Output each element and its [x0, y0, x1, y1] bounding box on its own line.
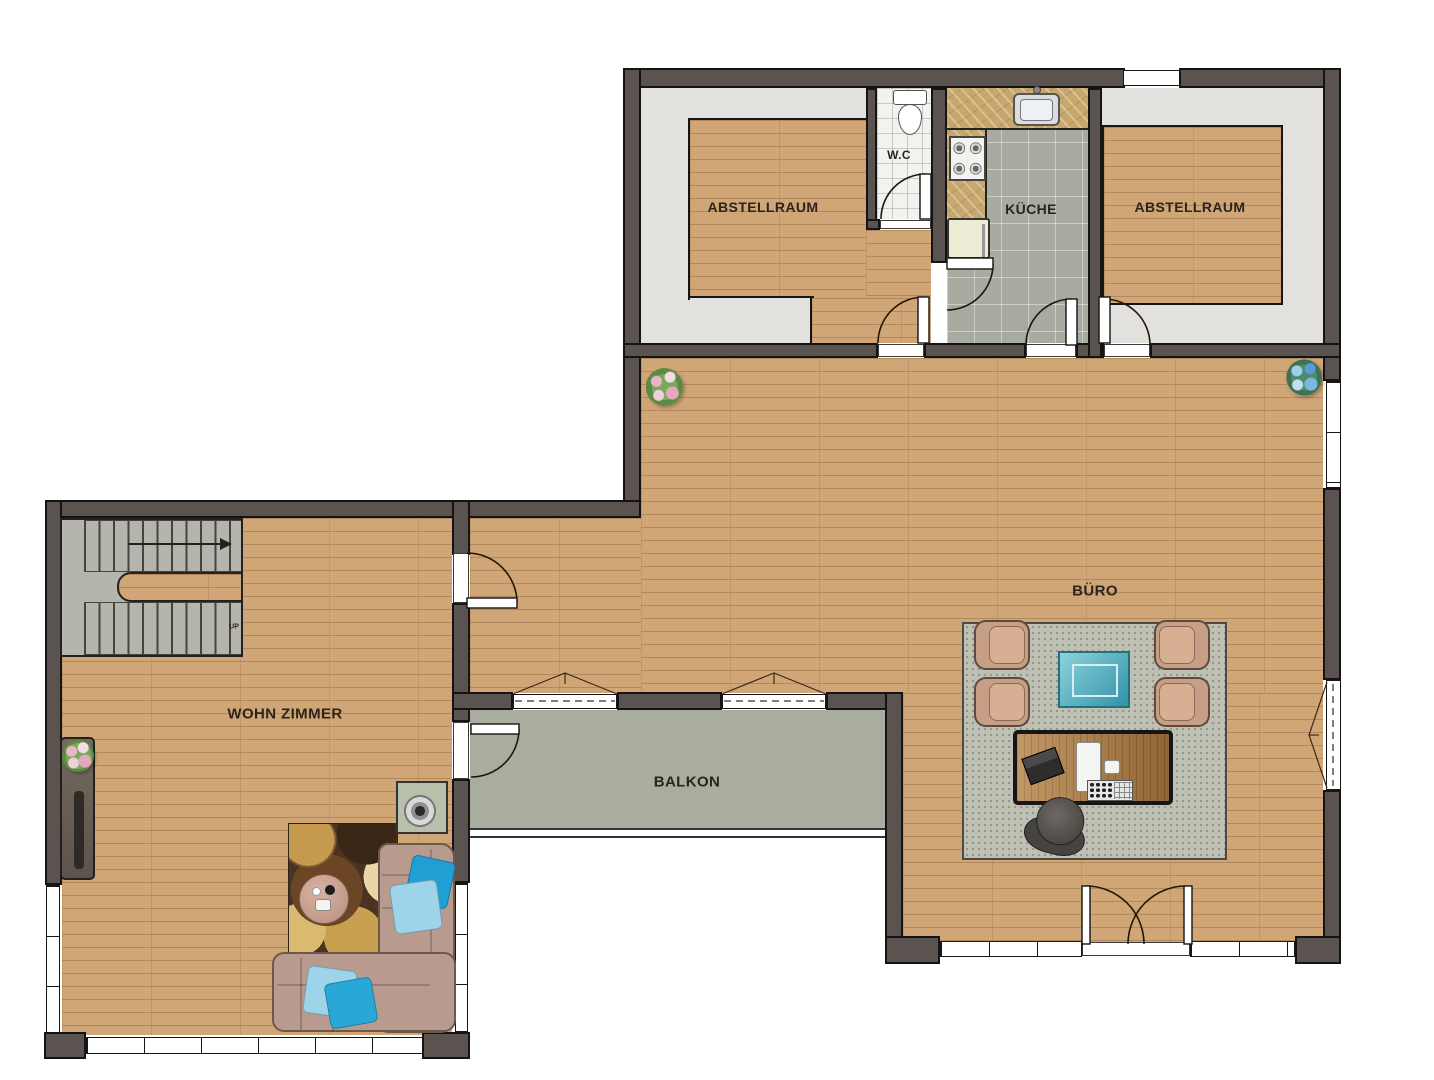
patch-border	[688, 296, 814, 298]
fireplace-stove	[396, 781, 448, 834]
pillow-dark-cyan	[323, 976, 378, 1030]
wall-kueche-east	[1088, 88, 1102, 358]
wall-left-upper-block	[623, 68, 641, 518]
balkon-floor	[470, 710, 887, 828]
patch-border	[810, 296, 812, 343]
corner-buero-bottom-left	[885, 936, 940, 964]
flower-plant	[1285, 359, 1322, 396]
stove-ring	[403, 794, 437, 828]
window-wohnzimmer-bottom	[86, 1037, 423, 1054]
sink-faucet	[1033, 86, 1041, 94]
window-buero-bottom-1	[940, 941, 1082, 957]
window-buero-bottom-2	[1190, 941, 1295, 957]
sliding-door-balcony-2	[722, 694, 826, 709]
wc-door-gap	[880, 220, 931, 229]
abstellraum-left-wood-step	[812, 298, 931, 343]
wall-wohnzimmer-top	[45, 500, 641, 518]
wall-right-upper	[1323, 68, 1341, 381]
wall-balcony-1	[452, 692, 513, 710]
window-top	[1123, 70, 1181, 86]
numpad	[1114, 782, 1132, 799]
flower-plant	[645, 368, 683, 406]
label-wc: W.C	[887, 148, 911, 162]
coffee-table-round	[299, 874, 349, 924]
kitchen-sink	[1013, 93, 1060, 126]
label-buero: BÜRO	[1072, 583, 1118, 600]
sink-basin	[1020, 99, 1053, 121]
stairs-void	[117, 572, 243, 602]
window-wz-east	[455, 883, 468, 1032]
wall-top-left	[623, 68, 1125, 88]
staircase	[60, 518, 243, 657]
label-balkon: BALKON	[654, 774, 721, 791]
sliding-door-right	[1326, 680, 1341, 790]
window-right-upper	[1326, 381, 1341, 488]
wall-top-right	[1179, 68, 1341, 88]
door-gap	[1104, 344, 1150, 357]
label-kueche: KÜCHE	[1005, 201, 1057, 217]
wall-topblock-bottom-1	[623, 343, 878, 358]
sliding-door-balcony-1	[513, 694, 617, 709]
wall-topblock-bottom-2	[924, 343, 1026, 358]
wall-wc-west	[866, 88, 877, 230]
sideboard-decor	[74, 791, 84, 869]
door-gap	[878, 344, 924, 357]
corner-wz-bottom-right	[422, 1032, 470, 1059]
hall-floor-left	[470, 518, 641, 693]
fridge-handle	[982, 224, 985, 257]
armchair	[974, 620, 1030, 670]
patch-border	[688, 118, 868, 120]
stairs-up-label: UP	[229, 624, 239, 631]
corner-wz-bottom-left	[44, 1032, 86, 1059]
cup	[312, 887, 321, 896]
potted-plant	[62, 740, 94, 772]
wall-right-mid	[1323, 488, 1341, 680]
stairs-lower-flight	[84, 602, 241, 655]
floor-plan: UP	[0, 0, 1434, 1080]
abstellraum-right-wood	[1102, 125, 1283, 305]
label-abstellraum-right: ABSTELLRAUM	[1135, 199, 1246, 215]
wall-wc-bottom-stub	[866, 219, 880, 230]
balcony-railing	[468, 828, 888, 838]
entry-door-gap	[1082, 942, 1190, 956]
sofa-seam	[277, 984, 301, 986]
door-gap	[1026, 344, 1076, 357]
bowl	[325, 885, 335, 895]
keyboard	[1087, 780, 1133, 801]
pillow-light-cyan	[389, 879, 443, 935]
keyboard-keys	[1089, 782, 1113, 799]
armchair	[974, 677, 1030, 727]
coffee-table-teal	[1058, 651, 1130, 708]
wall-wc-east	[931, 88, 947, 263]
note-card	[1104, 760, 1120, 774]
door-gap-balcony	[453, 722, 469, 779]
stove-cooktop	[949, 136, 986, 181]
wall-right-lower	[1323, 790, 1341, 942]
wall-wz-east-1	[452, 500, 470, 555]
sofa-seam	[300, 958, 302, 1030]
corner-buero-bottom-right	[1295, 936, 1341, 964]
tray	[315, 899, 331, 911]
toilet	[893, 90, 927, 136]
armchair	[1154, 620, 1210, 670]
toilet-bowl	[898, 104, 922, 135]
stairs-upper-flight	[84, 520, 241, 572]
laptop	[1021, 747, 1064, 786]
wall-buero-west	[885, 692, 903, 964]
table-inlay	[1072, 664, 1118, 697]
refrigerator	[947, 218, 990, 259]
armchair	[1154, 677, 1210, 727]
wall-balcony-2	[617, 692, 722, 710]
door-gap-hall	[453, 553, 469, 603]
patch-border	[688, 118, 690, 300]
wall-topblock-bottom-4	[1150, 343, 1341, 358]
label-wohnzimmer: WOHN ZIMMER	[227, 706, 342, 723]
label-abstellraum-left: ABSTELLRAUM	[708, 199, 819, 215]
window-wohnzimmer-left	[46, 885, 60, 1033]
wc-corridor-floor	[866, 230, 931, 298]
toilet-tank	[893, 90, 927, 105]
